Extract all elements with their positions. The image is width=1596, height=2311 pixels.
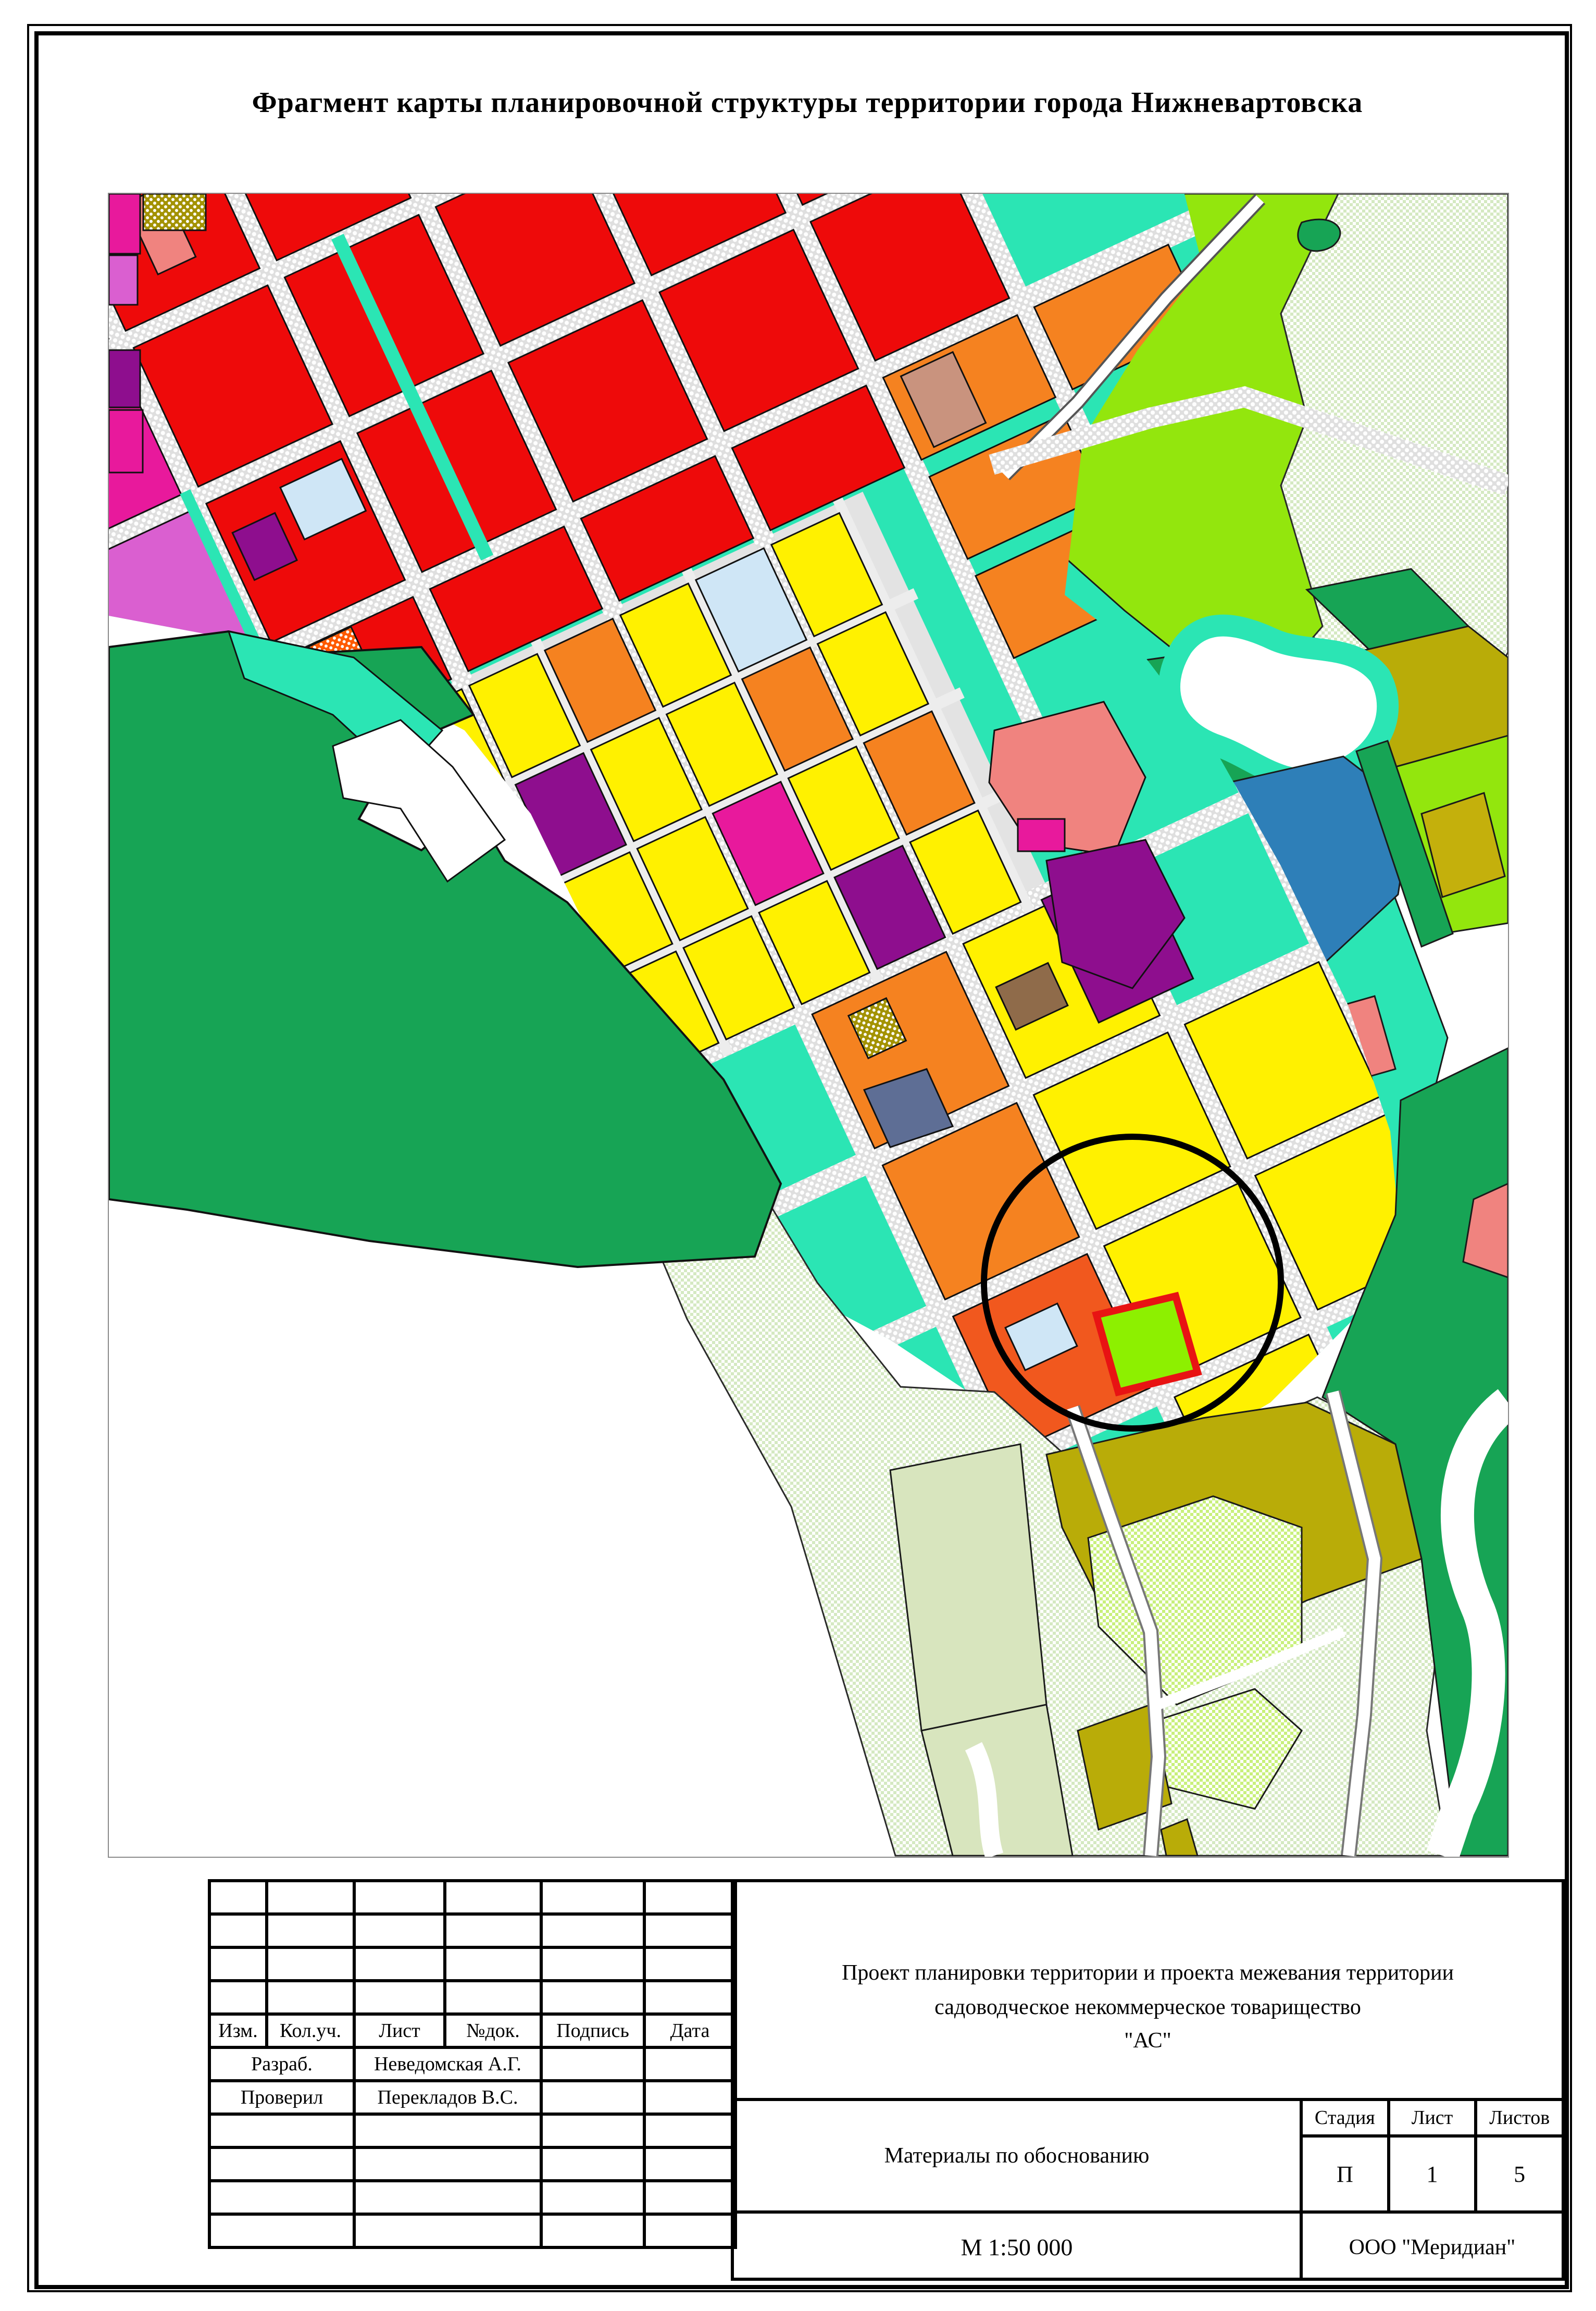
project-line-3: "АС" xyxy=(734,2028,1562,2053)
planning-map-svg xyxy=(109,194,1508,1857)
stage-label: Стадия xyxy=(1303,2101,1387,2134)
col-dok: №док. xyxy=(445,2014,541,2047)
name-razrab: Неведомская А.Г. xyxy=(354,2047,541,2081)
sheets-value: 5 xyxy=(1474,2138,1562,2210)
role-proveril: Проверил xyxy=(209,2081,354,2114)
stage-value: П xyxy=(1303,2138,1387,2210)
site-parcel xyxy=(1096,1296,1198,1392)
role-razrab: Разраб. xyxy=(209,2047,354,2081)
planning-map xyxy=(108,193,1509,1858)
col-podpis: Подпись xyxy=(541,2014,644,2047)
sheets-label: Листов xyxy=(1474,2101,1562,2134)
project-line-1: Проект планировки территории и проекта м… xyxy=(734,1960,1562,1985)
title-block-revision-table: Изм. Кол.уч. Лист №док. Подпись Дата Раз… xyxy=(208,1879,737,2249)
stage-sheet-box: Стадия Лист Листов П 1 5 xyxy=(1300,2101,1562,2210)
sheet-value: 1 xyxy=(1387,2138,1475,2210)
title-block-main: Проект планировки территории и проекта м… xyxy=(731,1879,1565,2281)
project-line-2: садоводческое некоммерческое товариществ… xyxy=(734,1995,1562,2020)
col-data: Дата xyxy=(644,2014,735,2047)
drawing-sheet: Фрагмент карты планировочной структуры т… xyxy=(0,0,1596,2311)
project-name-box: Проект планировки территории и проекта м… xyxy=(734,1882,1562,2101)
page-title: Фрагмент карты планировочной структуры т… xyxy=(108,86,1507,119)
col-list: Лист xyxy=(354,2014,445,2047)
name-proveril: Перекладов В.С. xyxy=(354,2081,541,2114)
col-izm: Изм. xyxy=(209,2014,267,2047)
document-title: Материалы по обоснованию xyxy=(734,2101,1300,2210)
sheet-label: Лист xyxy=(1387,2101,1475,2134)
col-koluch: Кол.уч. xyxy=(267,2014,354,2047)
organization: ООО "Меридиан" xyxy=(1300,2214,1562,2281)
map-scale: М 1:50 000 xyxy=(734,2214,1300,2281)
